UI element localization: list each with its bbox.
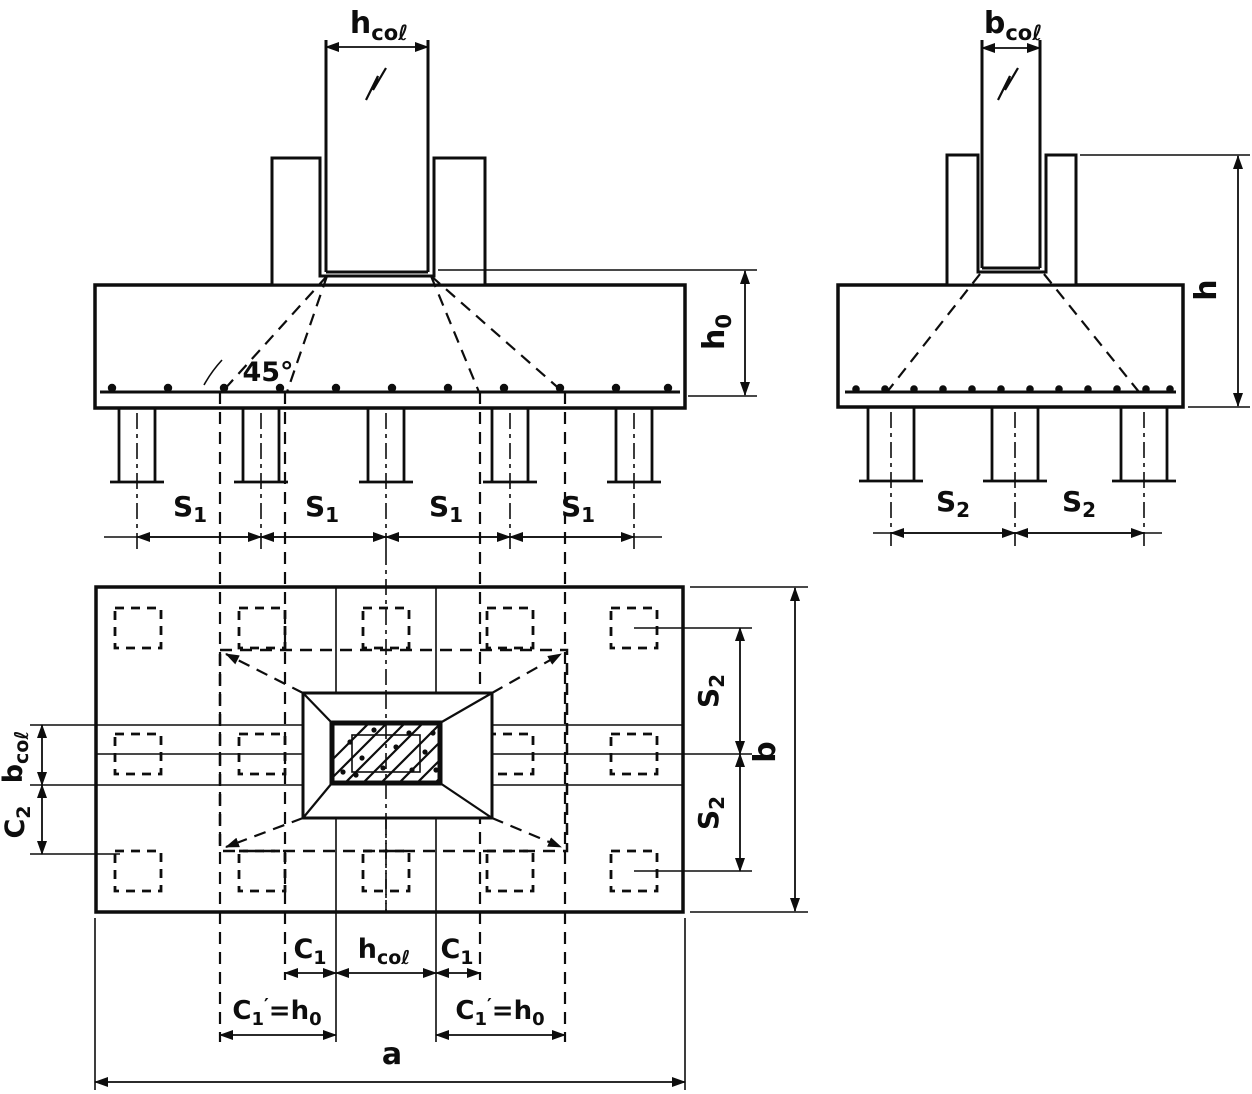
- label-c1-right: C1: [440, 934, 473, 969]
- label-h0: h0: [697, 314, 736, 350]
- dim-a: a: [95, 918, 685, 1090]
- label-s2-plan-1: S2: [692, 674, 729, 708]
- label-bcol-top: bcoℓ: [984, 6, 1042, 45]
- piles-front: [110, 408, 661, 549]
- column-front: [326, 40, 428, 272]
- dim-hcol-top: hcoℓ: [326, 6, 428, 47]
- column-side: [982, 40, 1040, 268]
- side-elevation: bcoℓ h S2 S2: [838, 6, 1250, 546]
- label-hcol-top: hcoℓ: [350, 6, 408, 45]
- dim-plan-left: bcoℓ C2: [0, 725, 42, 854]
- label-s1-3: S1: [429, 490, 463, 527]
- label-a: a: [382, 1037, 402, 1072]
- dim-plan-right: S2 S2 b: [690, 587, 808, 912]
- label-s1-1: S1: [173, 490, 207, 527]
- pile-cap-foundation-figure: hcoℓ 45° h0 S1 S1 S1 S1: [0, 0, 1252, 1094]
- dim-s2-chain-side: S2 S2: [873, 485, 1162, 533]
- label-s1-2: S1: [305, 490, 339, 527]
- pile-centerlines: [137, 413, 634, 549]
- dim-s1-chain: S1 S1 S1 S1: [104, 490, 662, 537]
- dim-bottom-c1prime: C1′=h0 C1′=h0: [220, 995, 565, 1035]
- label-hcol-bottom: hcoℓ: [358, 934, 411, 969]
- label-s2-side-1: S2: [936, 485, 970, 522]
- label-s2-plan-2: S2: [692, 796, 729, 830]
- label-c1prime-right: C1′=h0: [455, 995, 544, 1030]
- label-45-degrees: 45°: [242, 357, 293, 388]
- front-elevation: hcoℓ 45° h0 S1 S1 S1 S1: [95, 6, 757, 549]
- dim-bottom-c1-chain: C1 hcoℓ C1: [285, 934, 480, 973]
- label-bcol-plan: bcoℓ: [0, 731, 33, 784]
- pile-centerlines-side: [891, 412, 1144, 546]
- dim-bcol-top: bcoℓ: [982, 6, 1042, 48]
- label-b: b: [748, 741, 783, 762]
- label-s2-side-2: S2: [1062, 485, 1096, 522]
- label-c1prime-left: C1′=h0: [232, 995, 321, 1030]
- piles-side: [859, 407, 1176, 546]
- technical-drawing: hcoℓ 45° h0 S1 S1 S1 S1: [0, 0, 1252, 1094]
- label-c2: C2: [0, 805, 35, 838]
- label-c1-left: C1: [293, 934, 326, 969]
- label-h: h: [1189, 279, 1224, 300]
- plan-view: bcoℓ C2 S2 S2 b C1 hcoℓ C1 C1′=h0: [0, 587, 808, 1090]
